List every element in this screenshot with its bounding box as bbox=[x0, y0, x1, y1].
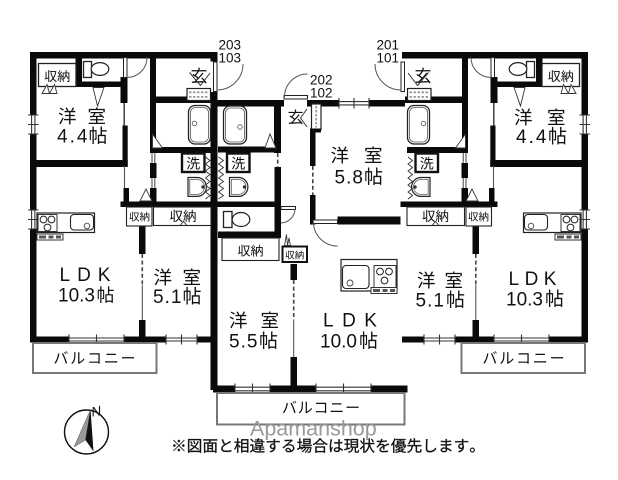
svg-text:5.8: 5.8 bbox=[335, 168, 364, 189]
svg-text:103: 103 bbox=[219, 51, 242, 66]
svg-text:4.4: 4.4 bbox=[57, 127, 89, 148]
svg-text:10.0: 10.0 bbox=[320, 332, 357, 353]
svg-text:102: 102 bbox=[310, 86, 333, 101]
svg-text:Apamanshop: Apamanshop bbox=[250, 417, 377, 441]
svg-text:LDK: LDK bbox=[509, 269, 562, 290]
svg-text:5.1: 5.1 bbox=[416, 291, 445, 312]
svg-text:4.4: 4.4 bbox=[516, 127, 548, 148]
svg-text:LDK: LDK bbox=[60, 265, 118, 286]
svg-text:10.3: 10.3 bbox=[506, 290, 543, 311]
svg-text:LDK: LDK bbox=[323, 311, 385, 332]
svg-text:5.5: 5.5 bbox=[229, 332, 258, 353]
svg-text:5.1: 5.1 bbox=[153, 287, 182, 308]
svg-text:101: 101 bbox=[377, 51, 400, 66]
svg-text:10.3: 10.3 bbox=[58, 286, 95, 307]
